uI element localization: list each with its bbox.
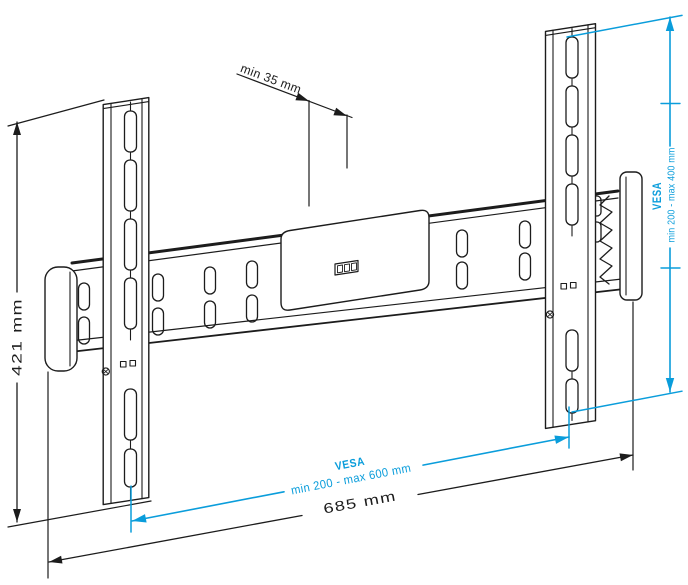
arrowhead-down <box>666 378 674 392</box>
dimension-depth-min35: min 35 mm <box>237 61 352 206</box>
width-dimension-line <box>49 516 302 563</box>
rail-slot <box>153 274 164 301</box>
rail-slot <box>457 262 468 289</box>
height-extension-line-bottom <box>8 501 151 527</box>
vesa-h-dimension-line <box>423 437 569 465</box>
diagram-canvas: min 35 mm 421 mm 685 mm VESA min 200 - m… <box>0 0 688 585</box>
right-end-cap <box>620 172 642 300</box>
arrowhead-up <box>666 17 674 31</box>
arrowhead-right <box>620 453 634 461</box>
left-end-cap-body <box>45 267 77 371</box>
rail-serrated-teeth <box>600 196 612 284</box>
center-plate <box>281 210 429 310</box>
vesa-v-range: min 200 - max 400 mm <box>666 147 678 242</box>
vesa-v-title: VESA <box>652 182 664 210</box>
rail-slot <box>247 261 258 288</box>
rail-slot <box>205 301 216 328</box>
arrowhead-left <box>49 556 63 564</box>
dimension-vesa-horizontal: VESA min 200 - max 600 mm <box>131 407 569 532</box>
depth-dimension-label: min 35 mm <box>239 61 304 97</box>
width-dimension-line <box>418 455 633 495</box>
arrowhead <box>333 108 347 116</box>
rail-slot <box>520 221 531 248</box>
vesa-h-dimension-line <box>132 492 284 521</box>
rail-slot <box>79 283 90 310</box>
rail-slot <box>205 267 216 294</box>
right-end-cap-body <box>620 172 642 300</box>
right-tv-bracket <box>546 24 596 429</box>
wall-mount-dimension-diagram: min 35 mm 421 mm 685 mm VESA min 200 - m… <box>0 0 688 585</box>
rail-slot <box>520 253 531 280</box>
height-extension-line-top <box>8 100 104 126</box>
left-tv-bracket <box>102 98 149 505</box>
height-dimension-label: 421 mm <box>9 298 25 376</box>
rail-slot <box>247 295 258 322</box>
center-plate-body <box>281 210 429 310</box>
width-dimension-label: 685 mm <box>322 487 398 516</box>
rail-slot <box>457 230 468 257</box>
left-end-cap <box>45 267 77 371</box>
arrowhead-down <box>13 509 21 522</box>
